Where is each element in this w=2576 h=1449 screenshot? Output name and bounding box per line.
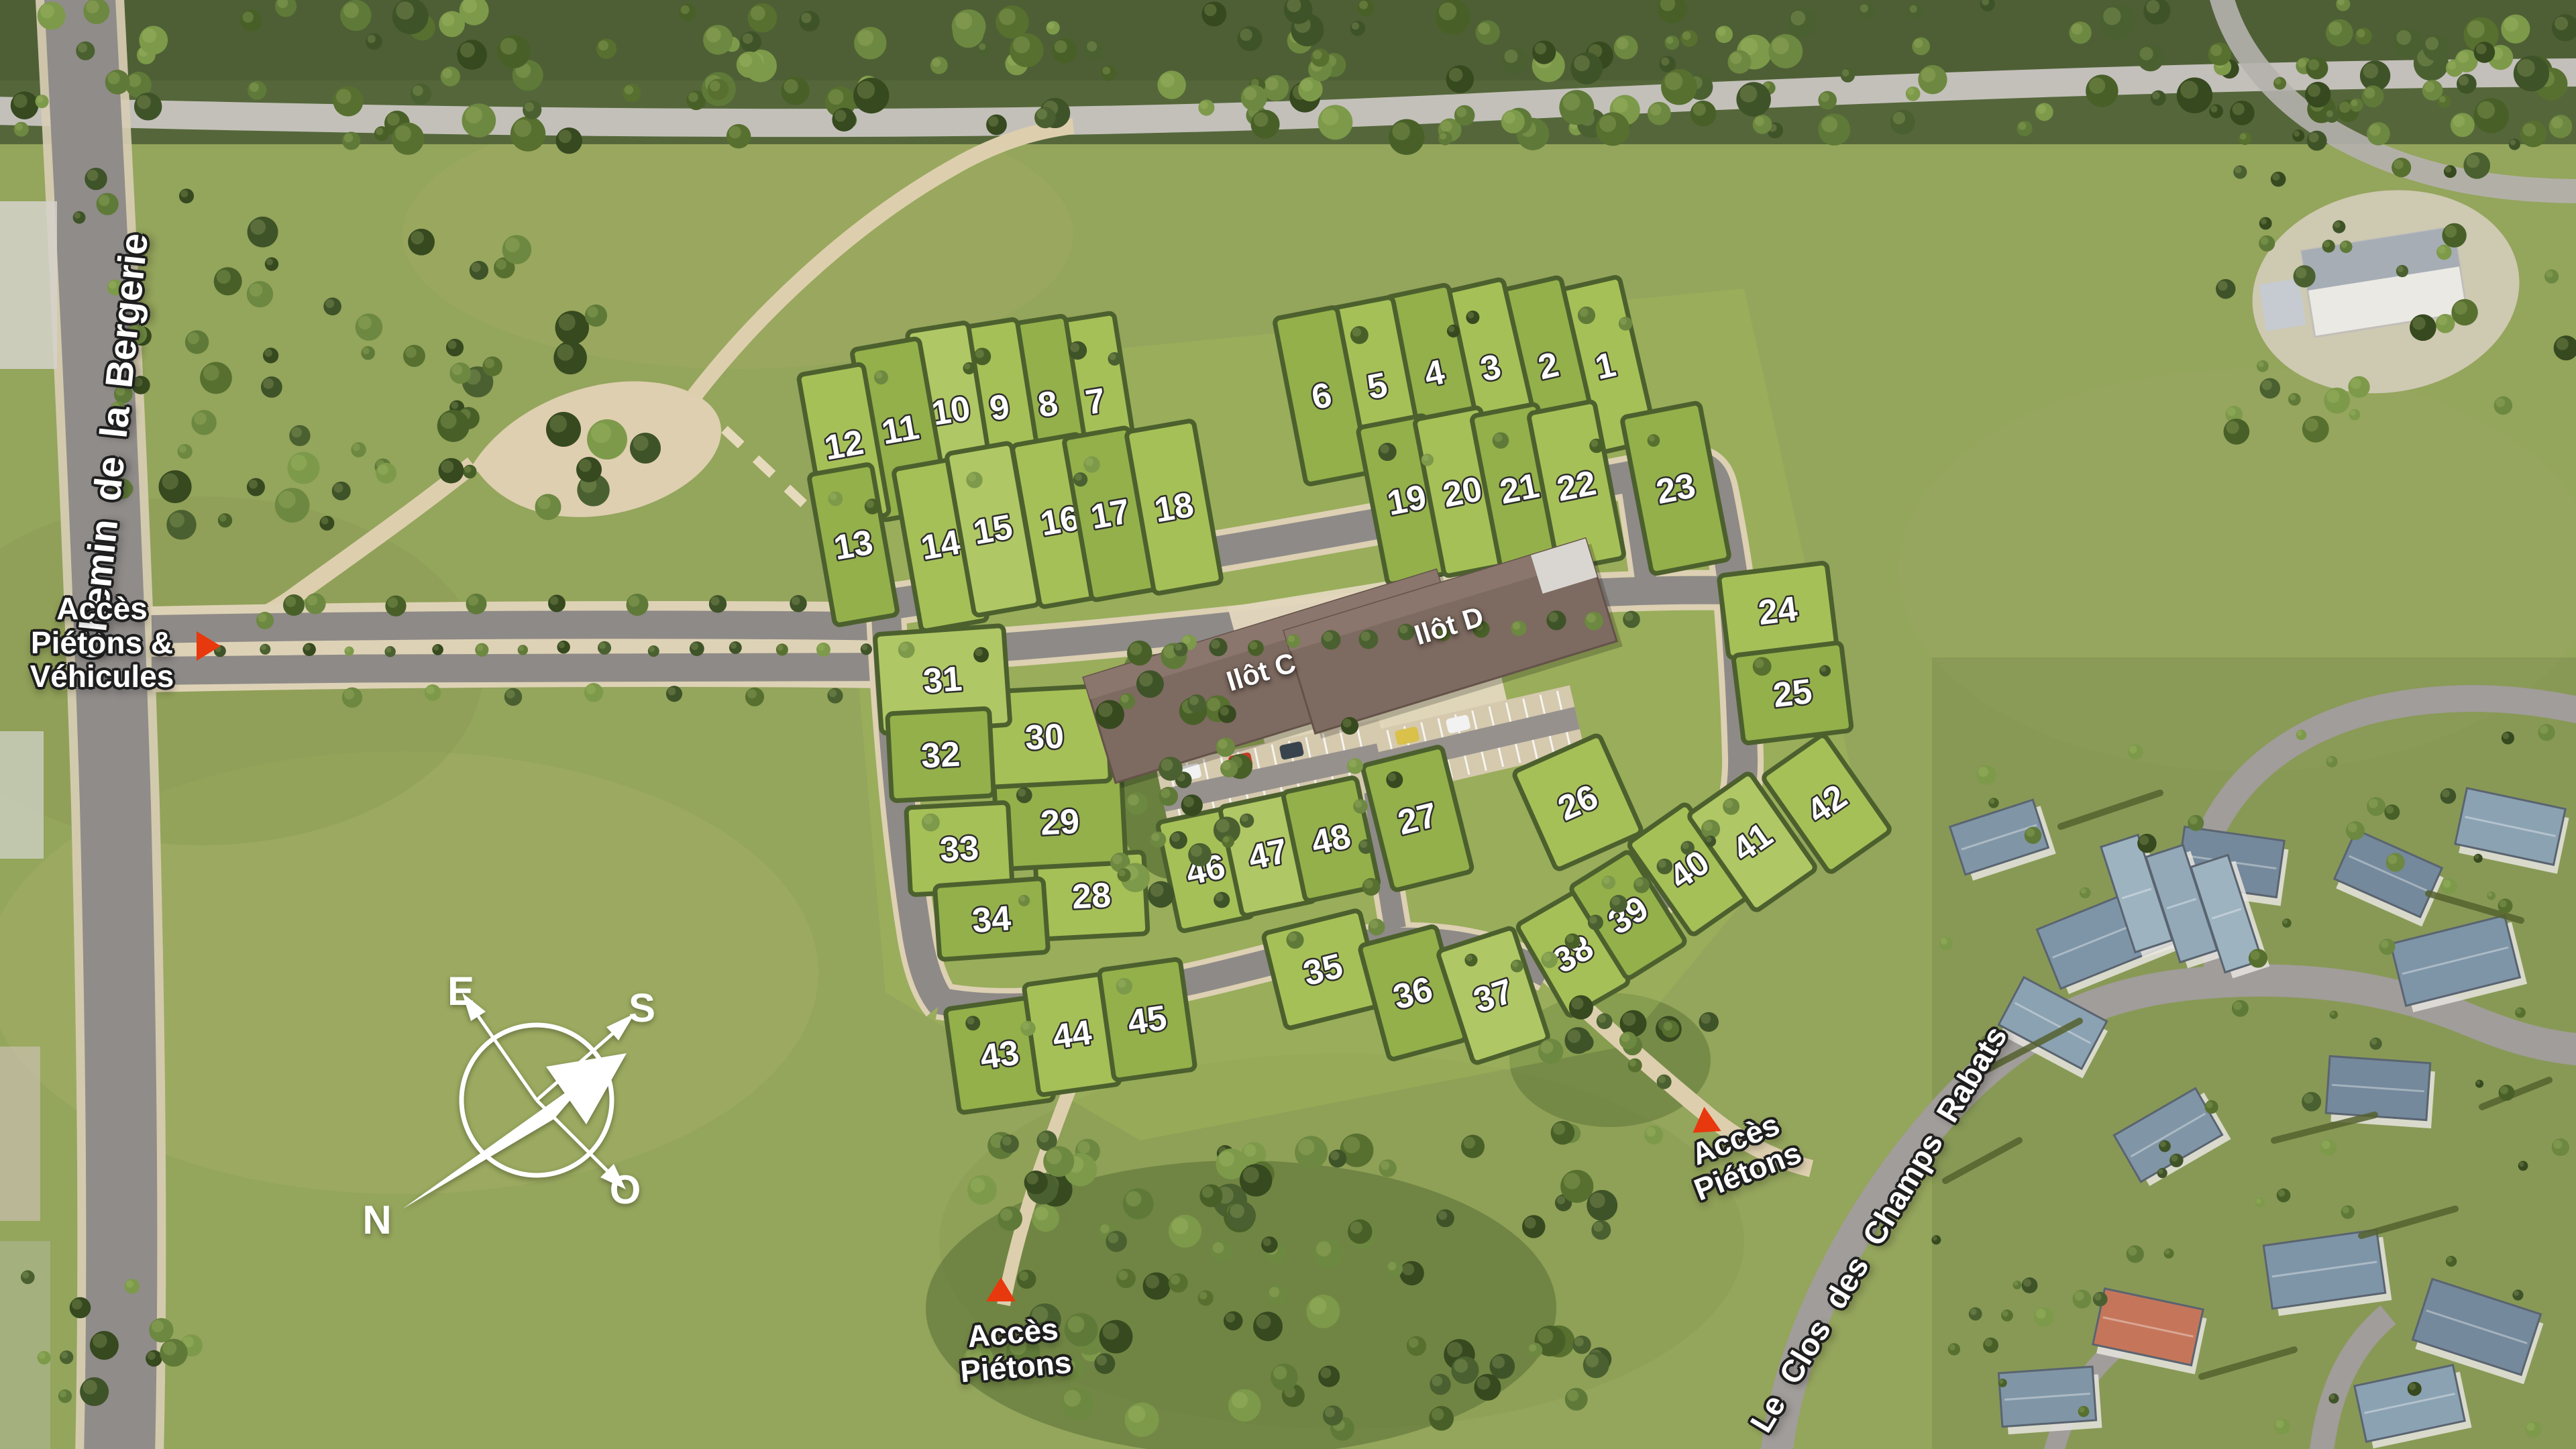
plot-number: 18 [1152,485,1197,530]
plot-number: 48 [1308,817,1354,863]
plot-number: 34 [971,899,1012,941]
plot-number: 11 [879,408,922,453]
plot-number: 31 [922,659,963,701]
plot-number: 30 [1024,717,1065,758]
plot-number: 14 [918,523,963,568]
plot-parcel-25: 25 [1733,643,1852,744]
plot-number: 43 [977,1033,1021,1077]
plot-number: 24 [1756,590,1800,633]
plot-number: 45 [1125,998,1169,1042]
plot-parcel-34: 34 [934,878,1048,959]
plot-number: 12 [822,423,867,468]
plot-number: 15 [971,507,1016,552]
plot-number: 13 [831,523,876,568]
terrain-canvas: 1234567891011121314151617181920212223242… [0,0,2576,1449]
compass-south-label: S [629,985,655,1030]
plot-number: 19 [1384,478,1430,523]
compass-west-label: O [610,1167,641,1212]
road-chemin-de-la-bergerie [79,0,121,1449]
plot-number: 20 [1440,470,1485,515]
existing-house [1998,1366,2102,1435]
plot-parcel-29: 29 [994,774,1126,869]
plot-number: 29 [1040,802,1081,843]
plot-parcel-45: 45 [1099,959,1195,1080]
existing-house [2325,1056,2435,1128]
plot-number: 32 [920,735,961,776]
compass-east-label: E [447,969,474,1014]
plot-number: 23 [1653,466,1699,512]
aerial-masterplan: 1234567891011121314151617181920212223242… [0,0,2576,1449]
plot-number: 47 [1245,832,1291,878]
plot-number: 33 [939,829,980,870]
plot-parcel-32: 32 [888,708,994,801]
plot-number: 22 [1554,464,1599,509]
plot-number: 17 [1088,492,1133,537]
plot-number: 21 [1497,466,1542,512]
plot-number: 25 [1771,672,1814,716]
compass-north-label: N [362,1197,391,1242]
plot-number: 28 [1071,876,1112,917]
plot-number: 44 [1050,1013,1093,1057]
